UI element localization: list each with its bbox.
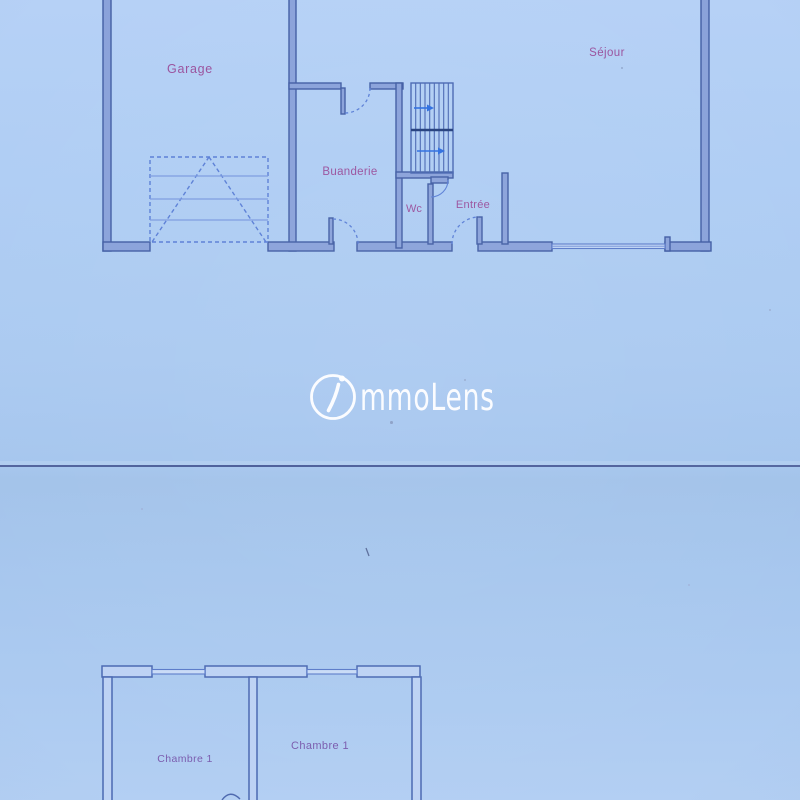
dust-speck (464, 379, 466, 381)
wall-top-right (357, 666, 420, 677)
window-chambre-right (307, 670, 357, 675)
dust-speck (141, 508, 143, 510)
room-label-chambre-left: Chambre 1 (157, 753, 213, 765)
letter-i-dot (339, 376, 345, 382)
dust-speck (769, 309, 771, 311)
wall-right (412, 677, 421, 800)
dust-speck (621, 67, 623, 69)
wall-top-left (102, 666, 152, 677)
immolens-watermark: mmoLens (307, 371, 517, 423)
window-chambre-left (152, 670, 205, 675)
room-label-wc: Wc (406, 203, 422, 215)
cutoff-door-arc (222, 794, 240, 800)
room-label-buanderie: Buanderie (322, 166, 377, 178)
wall-top-center (205, 666, 307, 677)
room-label-garage: Garage (167, 62, 213, 76)
floorplan-photo: Garage Séjour Buanderie Wc Entrée Chambr… (0, 0, 800, 800)
letter-i-stem (329, 385, 339, 411)
page-divider-line (0, 465, 800, 467)
upper-floor-walls (102, 666, 421, 800)
stray-mark (366, 548, 369, 556)
dust-speck (390, 421, 393, 424)
room-label-sejour: Séjour (589, 47, 625, 59)
dust-speck (688, 584, 690, 586)
immolens-logo-i (307, 371, 359, 423)
room-label-entree: Entrée (456, 199, 490, 211)
wall-left (103, 677, 112, 800)
wall-chambre-divider (249, 677, 257, 800)
room-label-chambre-right: Chambre 1 (291, 740, 349, 752)
immolens-logo-text: mmoLens (360, 371, 495, 423)
